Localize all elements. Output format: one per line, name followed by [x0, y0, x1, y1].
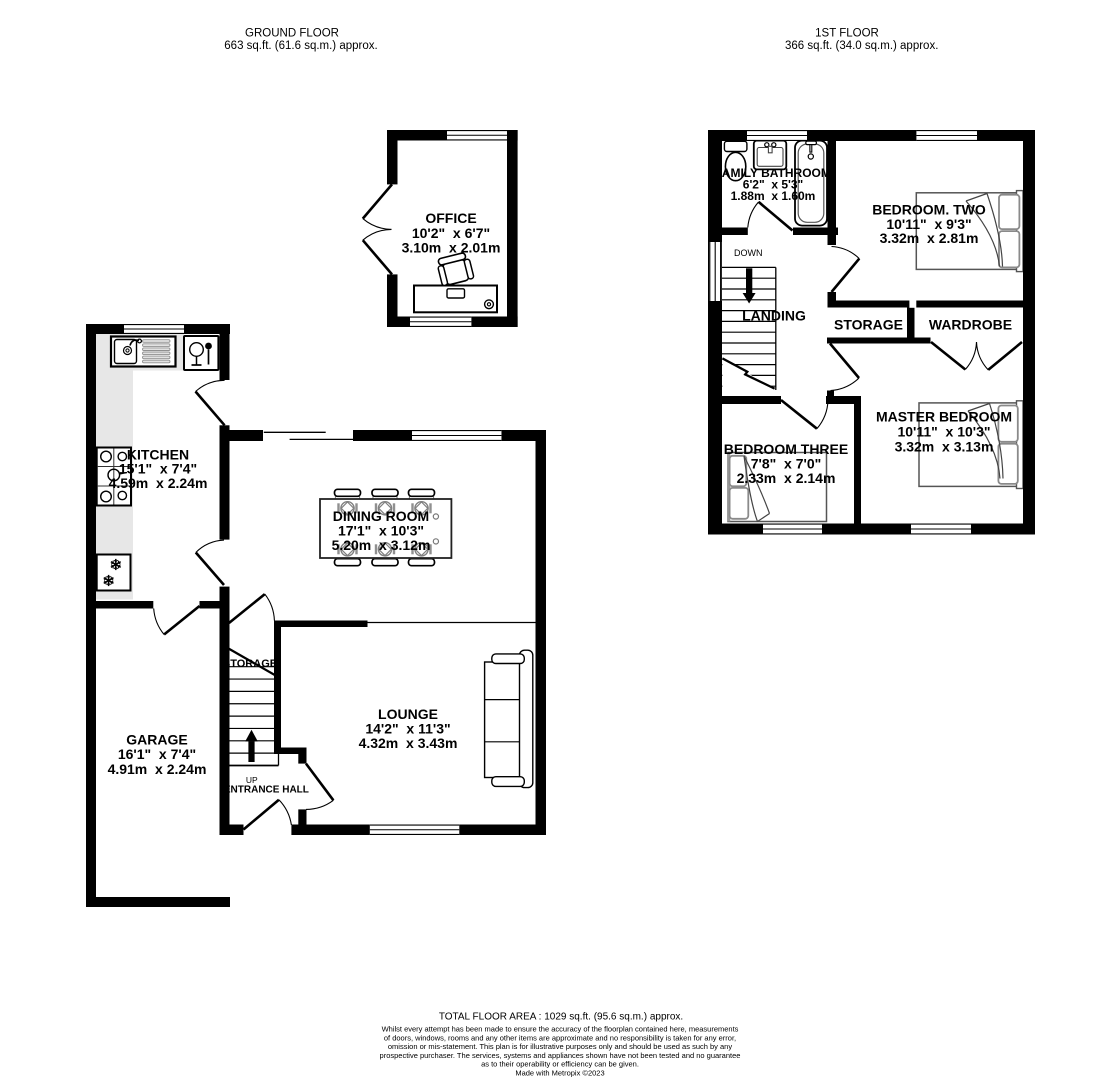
svg-text:Whilst every attempt has been: Whilst every attempt has been made to en… — [382, 1025, 739, 1034]
svg-text:4.91m x 2.24m: 4.91m x 2.24m — [108, 761, 207, 777]
svg-text:Made with Metropix ©2023: Made with Metropix ©2023 — [515, 1069, 604, 1078]
svg-text:5.20m x 3.12m: 5.20m x 3.12m — [332, 537, 431, 553]
svg-text:STORAGE: STORAGE — [834, 317, 903, 333]
svg-text:16'1" x 7'4": 16'1" x 7'4" — [118, 746, 196, 762]
svg-text:of doors, windows, rooms and a: of doors, windows, rooms and any other i… — [384, 1033, 736, 1042]
svg-text:STORAGE: STORAGE — [223, 658, 277, 670]
svg-text:4.59m x 2.24m: 4.59m x 2.24m — [109, 475, 208, 491]
svg-text:OFFICE: OFFICE — [425, 210, 476, 226]
svg-text:4.32m x 3.43m: 4.32m x 3.43m — [359, 735, 458, 751]
svg-text:GARAGE: GARAGE — [126, 731, 187, 747]
svg-text:ENTRANCE HALL: ENTRANCE HALL — [224, 785, 309, 796]
svg-text:GROUND FLOOR: GROUND FLOOR — [245, 28, 339, 40]
svg-text:DOWN: DOWN — [734, 248, 763, 258]
svg-text:2.33m x 2.14m: 2.33m x 2.14m — [737, 470, 836, 486]
svg-text:3.10m x 2.01m: 3.10m x 2.01m — [402, 240, 501, 256]
svg-text:UP: UP — [246, 775, 258, 785]
svg-text:663 sq.ft. (61.6 sq.m.) approx: 663 sq.ft. (61.6 sq.m.) approx. — [224, 40, 377, 52]
svg-text:WARDROBE: WARDROBE — [929, 317, 1012, 333]
svg-text:as to their operability or eff: as to their operability or efficiency ca… — [481, 1060, 639, 1069]
svg-text:omission or mis-statement. Thi: omission or mis-statement. This plan is … — [388, 1042, 732, 1051]
svg-text:LANDING: LANDING — [742, 308, 806, 324]
svg-text:MASTER BEDROOM: MASTER BEDROOM — [876, 409, 1012, 425]
svg-text:TOTAL FLOOR AREA : 1029 sq.ft.: TOTAL FLOOR AREA : 1029 sq.ft. (95.6 sq.… — [439, 1011, 683, 1022]
svg-text:1ST FLOOR: 1ST FLOOR — [815, 28, 879, 40]
svg-text:3.32m x 2.81m: 3.32m x 2.81m — [880, 230, 979, 246]
svg-text:BEDROOM. TWO: BEDROOM. TWO — [872, 201, 986, 217]
svg-text:prospective purchaser. The ser: prospective purchaser. The services, sys… — [380, 1051, 741, 1060]
svg-text:10'2" x 6'7": 10'2" x 6'7" — [412, 225, 490, 241]
svg-text:10'11" x 10'3": 10'11" x 10'3" — [897, 424, 990, 440]
svg-text:1.88m x 1.60m: 1.88m x 1.60m — [731, 189, 816, 203]
svg-text:366 sq.ft. (34.0 sq.m.) approx: 366 sq.ft. (34.0 sq.m.) approx. — [785, 40, 938, 52]
svg-text:3.32m x 3.13m: 3.32m x 3.13m — [895, 439, 994, 455]
